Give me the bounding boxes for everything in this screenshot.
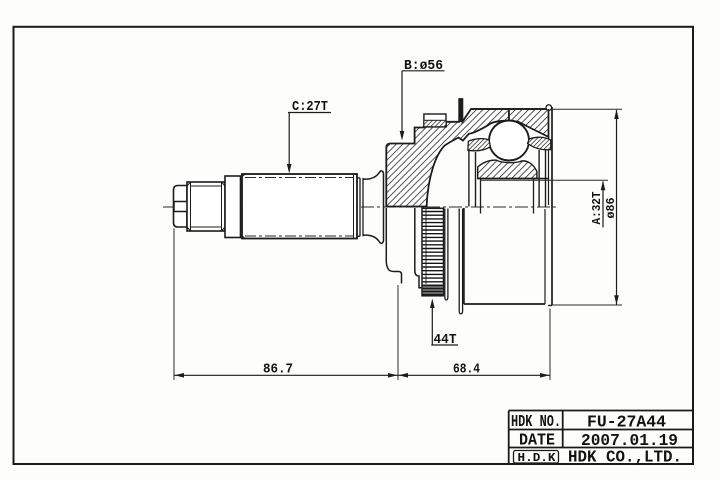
svg-text:HDK CO.,LTD.: HDK CO.,LTD. [568, 448, 682, 467]
svg-text:86.7: 86.7 [263, 363, 293, 378]
svg-text:68.4: 68.4 [453, 363, 480, 378]
svg-text:44T: 44T [434, 333, 457, 348]
svg-text:A:32T: A:32T [590, 192, 604, 225]
svg-text:FU-27A44: FU-27A44 [587, 414, 666, 433]
svg-text:HDK NO.: HDK NO. [511, 412, 561, 431]
svg-text:DATE: DATE [519, 431, 555, 450]
svg-text:H.D.K: H.D.K [518, 452, 556, 465]
svg-text:B:ø56: B:ø56 [404, 58, 443, 74]
